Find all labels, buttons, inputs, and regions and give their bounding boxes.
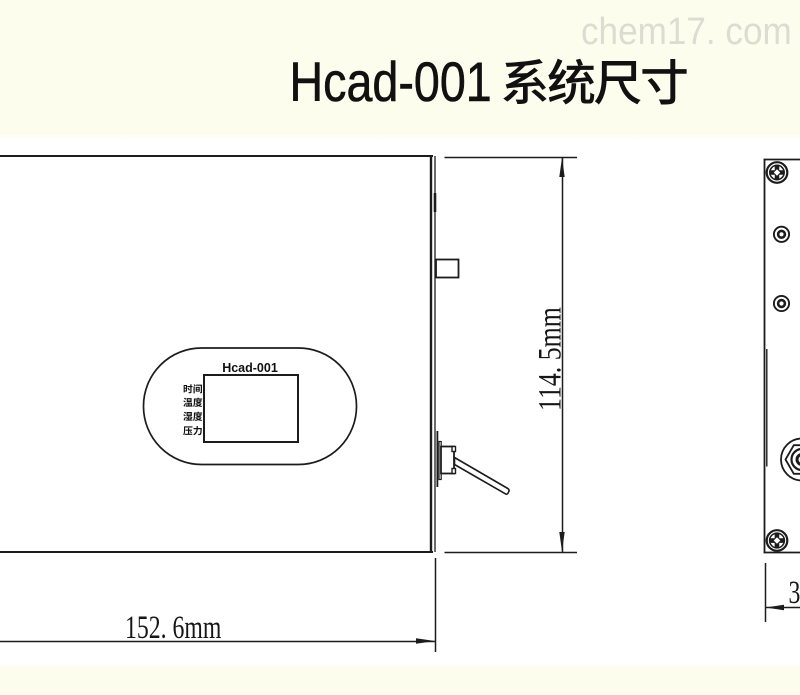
svg-text:Hcad-001: Hcad-001	[290, 50, 492, 113]
svg-text:Hcad-001: Hcad-001	[222, 361, 278, 375]
svg-text:35: 35	[789, 574, 800, 611]
svg-text:chem17. com: chem17. com	[581, 10, 792, 53]
svg-text:114. 5mm: 114. 5mm	[533, 307, 569, 411]
svg-text:152. 6mm: 152. 6mm	[125, 609, 221, 646]
